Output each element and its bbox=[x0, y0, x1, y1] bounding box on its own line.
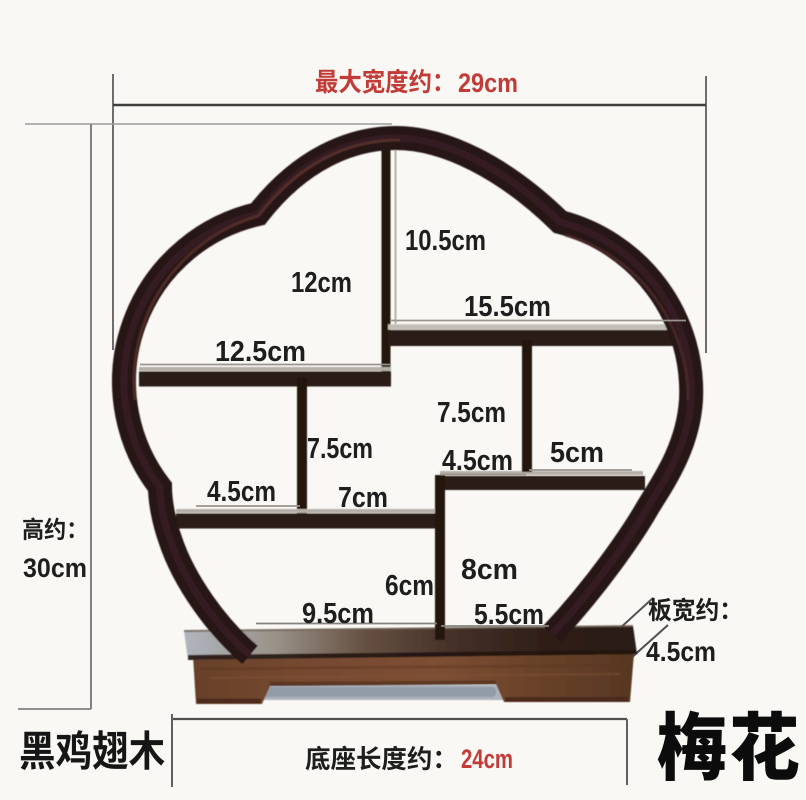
svg-text:5.5cm: 5.5cm bbox=[474, 599, 544, 631]
svg-text:30cm: 30cm bbox=[23, 553, 87, 583]
svg-text:10.5cm: 10.5cm bbox=[405, 225, 486, 257]
svg-text:8cm: 8cm bbox=[461, 554, 518, 586]
svg-text:7.5cm: 7.5cm bbox=[307, 433, 373, 465]
svg-text:6cm: 6cm bbox=[385, 570, 434, 602]
svg-text:9.5cm: 9.5cm bbox=[302, 598, 374, 630]
svg-text:5cm: 5cm bbox=[550, 437, 604, 469]
svg-text:12cm: 12cm bbox=[291, 267, 352, 299]
svg-text:7cm: 7cm bbox=[338, 482, 388, 514]
svg-text:15.5cm: 15.5cm bbox=[464, 291, 551, 323]
svg-text:7.5cm: 7.5cm bbox=[437, 397, 506, 429]
svg-text:12.5cm: 12.5cm bbox=[215, 336, 306, 368]
svg-text:29cm: 29cm bbox=[458, 68, 518, 98]
svg-text:4.5cm: 4.5cm bbox=[646, 636, 716, 667]
svg-text:24cm: 24cm bbox=[461, 744, 513, 774]
svg-text:4.5cm: 4.5cm bbox=[442, 445, 513, 477]
svg-text:4.5cm: 4.5cm bbox=[207, 476, 276, 508]
